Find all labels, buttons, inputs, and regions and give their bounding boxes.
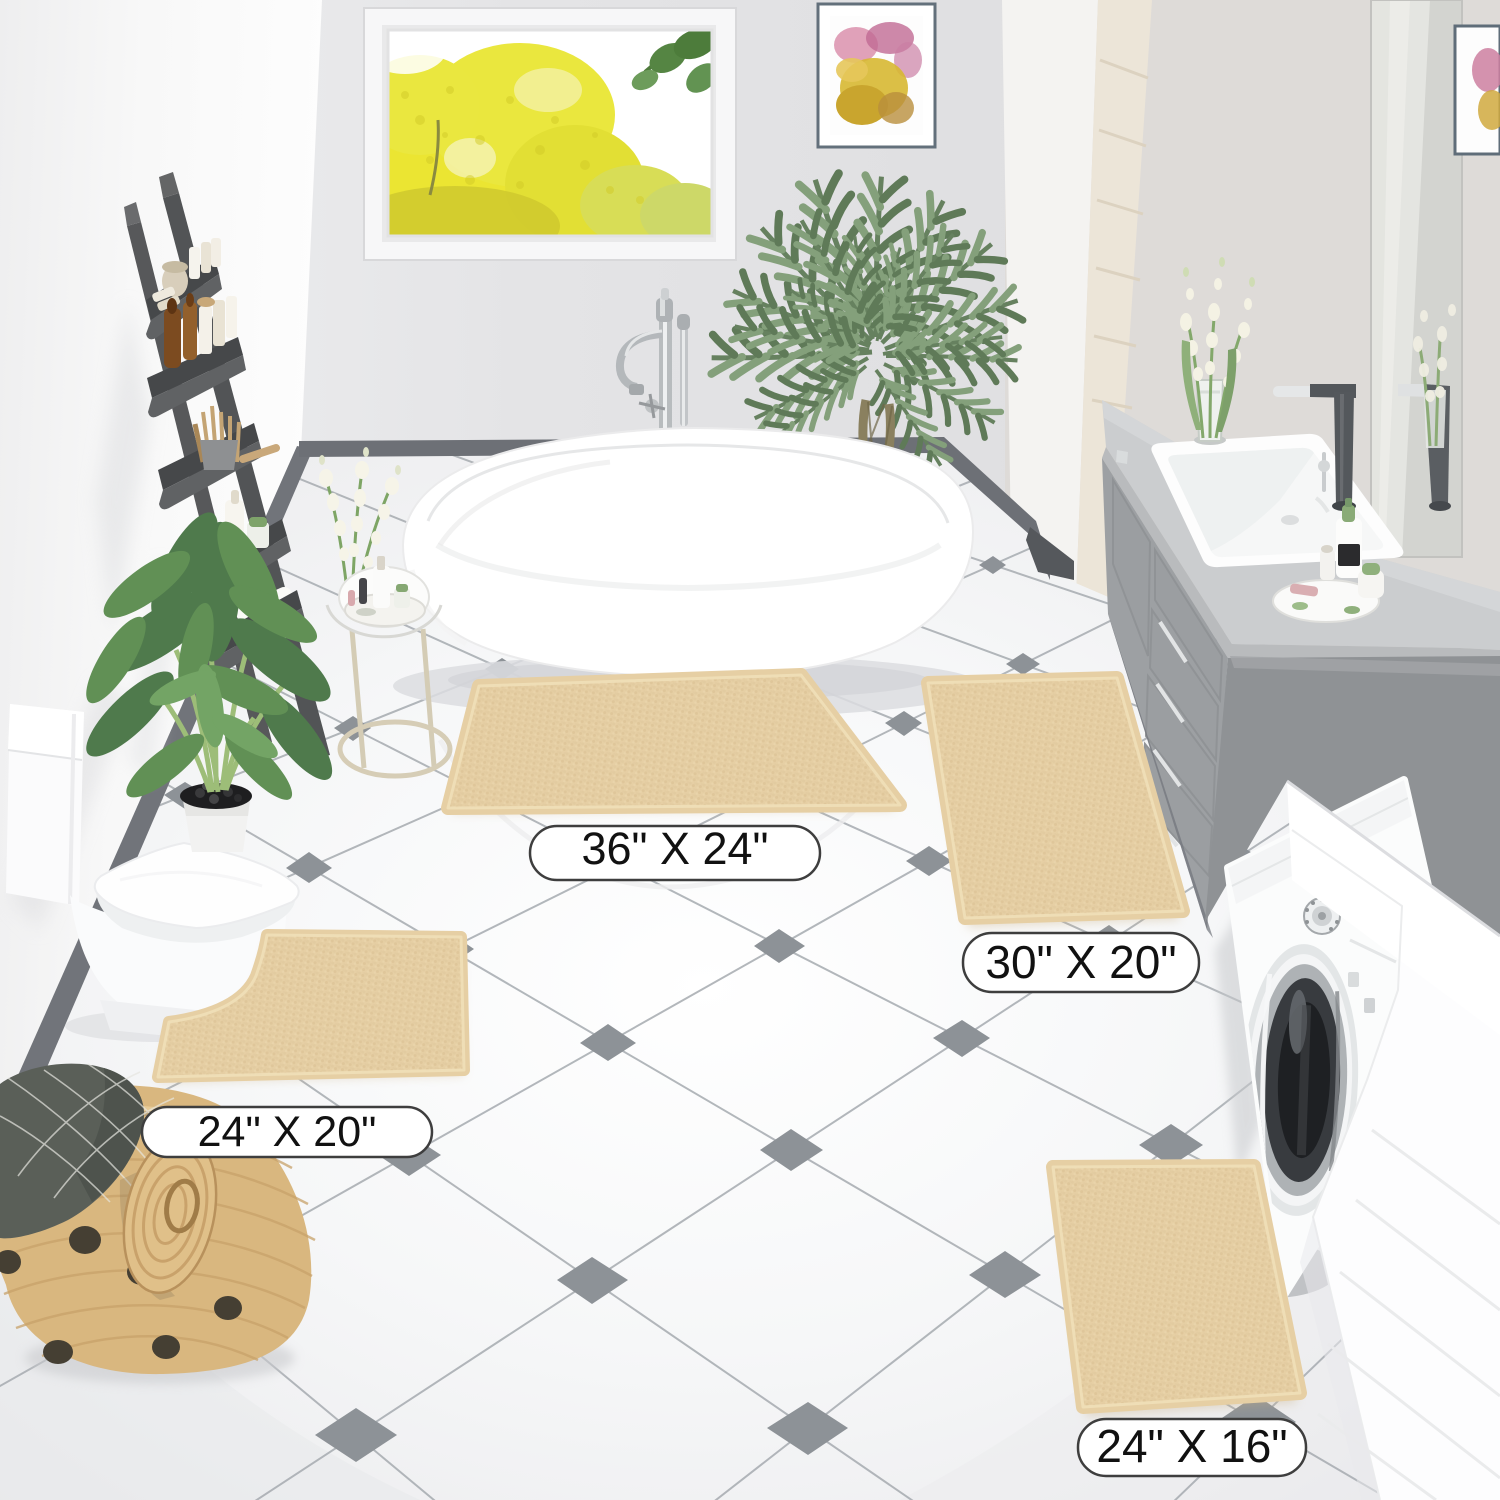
svg-text:24" X 16": 24" X 16" [1096, 1420, 1287, 1472]
svg-text:36" X 24": 36" X 24" [581, 823, 768, 874]
svg-text:30" X 20": 30" X 20" [985, 936, 1176, 988]
svg-text:24" X 20": 24" X 20" [198, 1108, 377, 1156]
